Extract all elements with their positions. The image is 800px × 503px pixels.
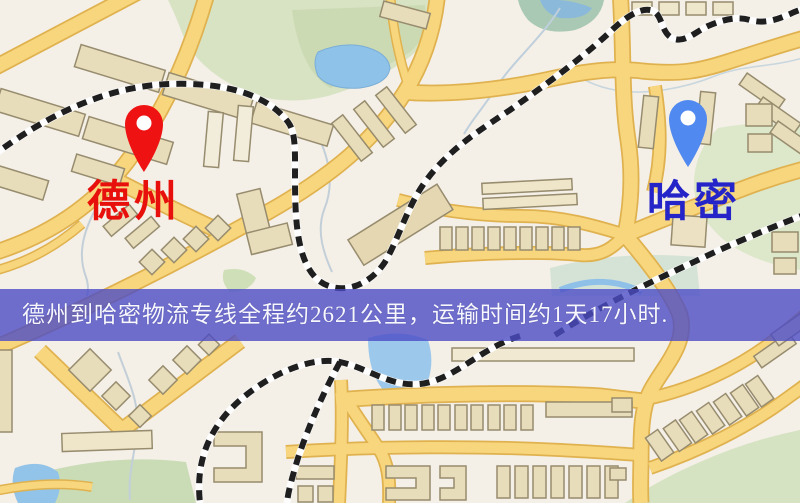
destination-label: 哈密 <box>647 178 741 226</box>
origin-label: 德州 <box>87 178 181 226</box>
map-art: 德州 哈密 <box>0 0 800 503</box>
route-info-text: 德州到哈密物流专线全程约2621公里，运输时间约1天17小时. <box>22 302 668 327</box>
pin-hole <box>681 111 696 126</box>
map-canvas: 德州 哈密 德州到哈密物流专线全程约2621公里，运输时间约1天17小时. <box>0 0 800 503</box>
route-info-banner: 德州到哈密物流专线全程约2621公里，运输时间约1天17小时. <box>0 289 800 341</box>
pin-hole <box>137 116 152 131</box>
